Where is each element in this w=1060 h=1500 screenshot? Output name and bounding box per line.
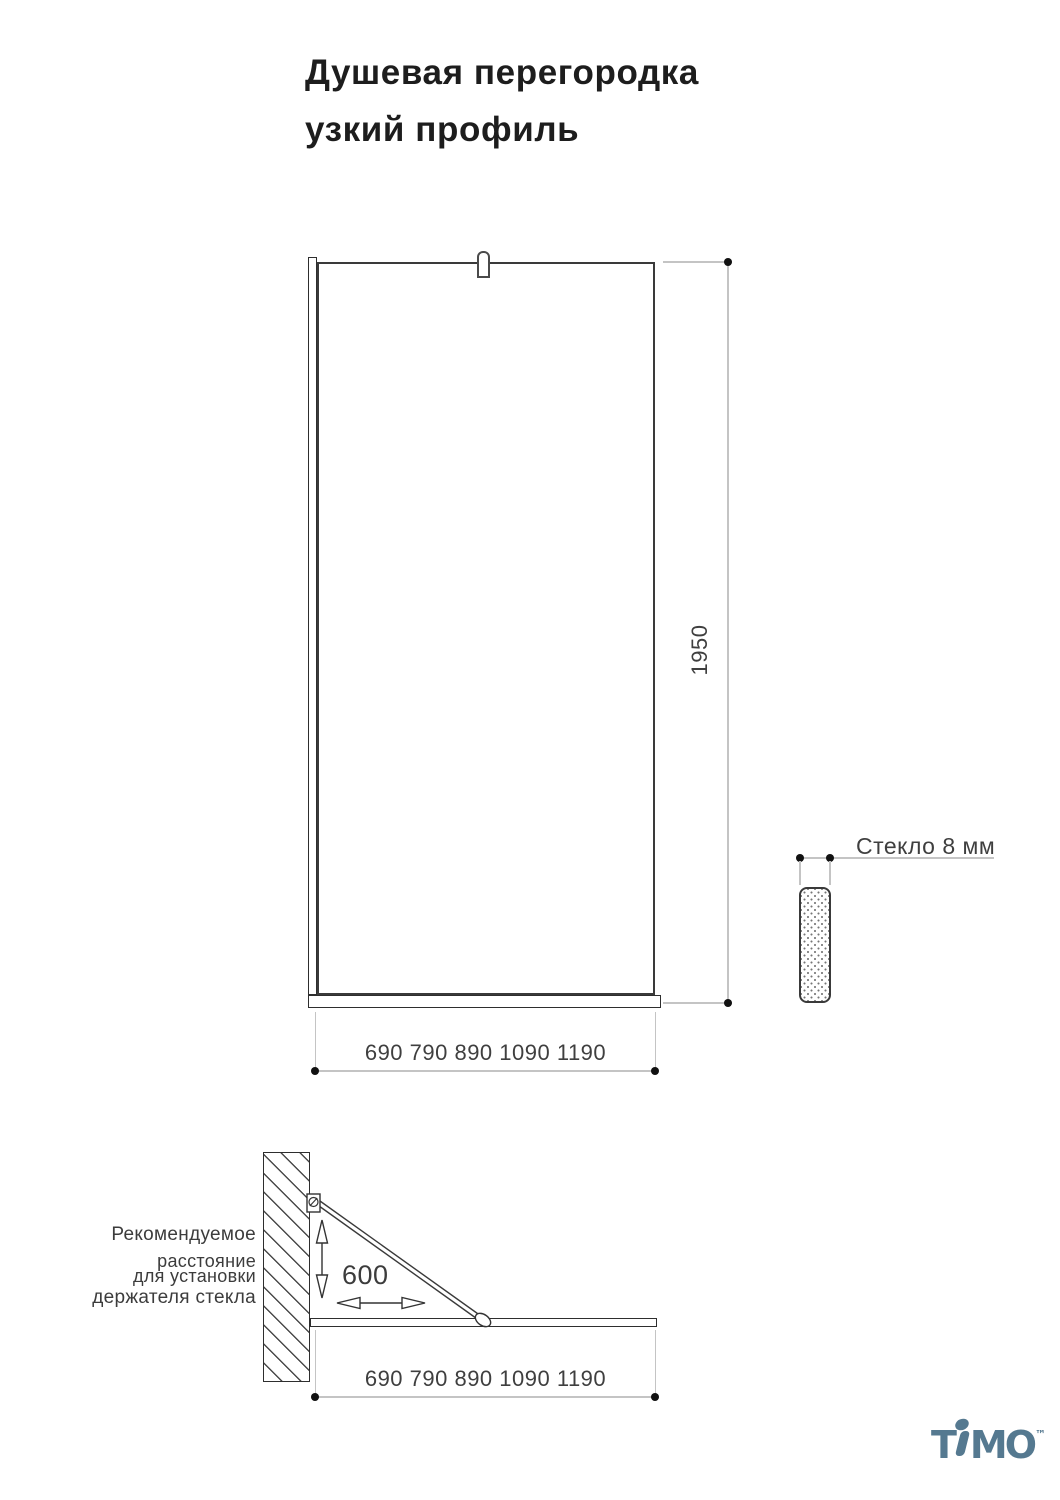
page-title: Душевая перегородка узкий профиль: [305, 44, 699, 158]
front-wall-profile: [308, 257, 317, 995]
glass-thickness-label: Стекло 8 мм: [856, 833, 995, 860]
side-dim-line-width: [315, 1396, 656, 1398]
drawing-sheet: Душевая перегородка узкий профиль 1950 6…: [0, 0, 1060, 1500]
trademark-symbol: ™: [1035, 1416, 1046, 1454]
dim-ext-bottom: [663, 1002, 732, 1004]
title-line-2: узкий профиль: [305, 101, 699, 158]
logo-letter-i: [954, 1420, 970, 1458]
dim-ext-top: [663, 261, 732, 263]
timo-logo: TMO ™: [931, 1420, 1034, 1464]
note-line-1: Рекомендуемое: [111, 1224, 256, 1246]
glass-holder-tab: [477, 251, 490, 278]
side-width-dimension-label: 690 790 890 1090 1190: [315, 1366, 656, 1392]
glass-ext-right: [829, 861, 830, 885]
dim-line-width: [315, 1070, 656, 1072]
dim-line-height: [727, 262, 729, 1003]
note-line-4: держателя стекла: [92, 1287, 256, 1309]
title-line-1: Душевая перегородка: [305, 44, 699, 101]
front-bottom-profile: [308, 995, 661, 1008]
double-arrow-vertical-icon: [317, 1220, 328, 1298]
width-dimension-label: 690 790 890 1090 1190: [315, 1040, 656, 1066]
dimension-dot: [311, 1393, 319, 1401]
dimension-dot: [724, 258, 732, 266]
holder-distance-label: 600: [342, 1260, 389, 1291]
front-glass-panel: [317, 262, 655, 995]
logo-letter-t: T: [931, 1423, 954, 1467]
note-line-3: для установки: [133, 1266, 256, 1287]
logo-letters-mo: MO: [970, 1423, 1034, 1467]
double-arrow-horizontal-icon: [337, 1298, 425, 1309]
height-dimension-label: 1950: [687, 610, 713, 690]
dimension-dot: [651, 1393, 659, 1401]
glass-cross-section: [799, 887, 831, 1003]
dimension-dot: [724, 999, 732, 1007]
glass-ext-left: [799, 861, 800, 885]
dimension-dot: [651, 1067, 659, 1075]
dimension-dot: [311, 1067, 319, 1075]
